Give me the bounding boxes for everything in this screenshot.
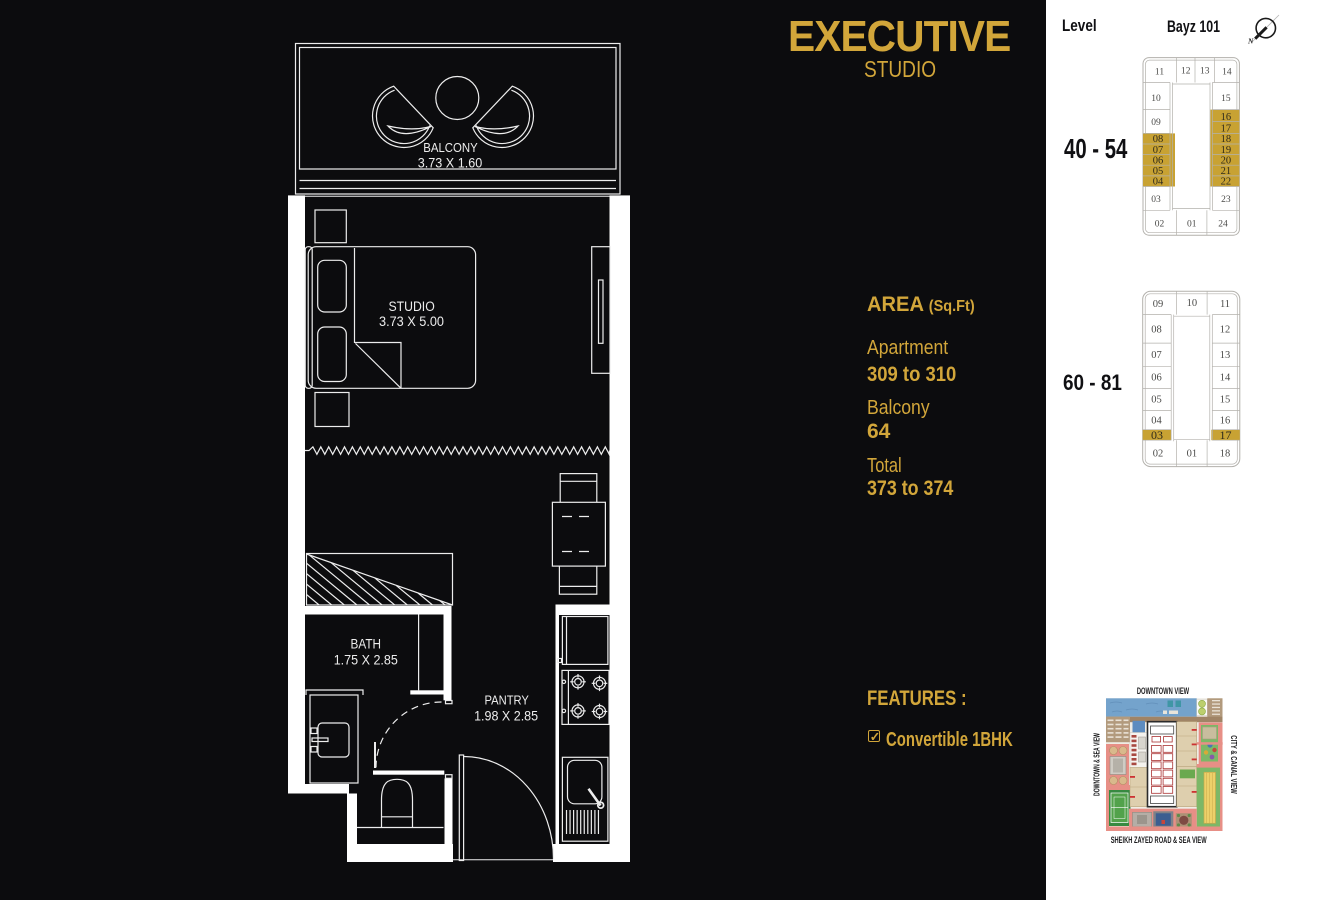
svg-text:18: 18 — [1221, 134, 1232, 145]
svg-text:05: 05 — [1151, 395, 1162, 406]
svg-text:DOWNTOWN VIEW: DOWNTOWN VIEW — [1137, 686, 1190, 696]
svg-text:15: 15 — [1221, 94, 1231, 104]
svg-text:14: 14 — [1222, 68, 1232, 78]
svg-text:06: 06 — [1153, 155, 1164, 166]
svg-text:04: 04 — [1151, 416, 1162, 427]
svg-text:1.98 X 2.85: 1.98 X 2.85 — [474, 708, 538, 724]
svg-text:BALCONY: BALCONY — [423, 140, 478, 155]
svg-text:02: 02 — [1155, 220, 1165, 230]
svg-text:05: 05 — [1153, 166, 1164, 177]
svg-text:16: 16 — [1221, 112, 1232, 123]
svg-text:14: 14 — [1220, 373, 1231, 384]
svg-text:11: 11 — [1220, 299, 1230, 310]
svg-text:06: 06 — [1151, 373, 1162, 384]
svg-text:22: 22 — [1221, 177, 1232, 188]
svg-text:07: 07 — [1153, 145, 1164, 156]
svg-text:17: 17 — [1221, 124, 1232, 135]
svg-text:02: 02 — [1153, 449, 1164, 460]
svg-text:03: 03 — [1151, 428, 1163, 442]
svg-text:SHEIKH ZAYED ROAD & SEA VIEW: SHEIKH ZAYED ROAD & SEA VIEW — [1111, 835, 1207, 845]
svg-text:DOWNTOWN & SEA VIEW: DOWNTOWN & SEA VIEW — [1093, 733, 1102, 796]
svg-text:10: 10 — [1187, 298, 1198, 309]
svg-text:09: 09 — [1151, 118, 1161, 128]
svg-text:07: 07 — [1151, 350, 1162, 361]
svg-text:09: 09 — [1153, 299, 1164, 310]
svg-text:PANTRY: PANTRY — [485, 693, 530, 708]
svg-text:03: 03 — [1151, 195, 1161, 205]
svg-text:STUDIO: STUDIO — [388, 299, 434, 314]
svg-text:01: 01 — [1187, 449, 1198, 460]
svg-text:04: 04 — [1153, 177, 1164, 188]
svg-text:20: 20 — [1221, 155, 1232, 166]
svg-text:CITY & CANAL VIEW: CITY & CANAL VIEW — [1229, 735, 1238, 794]
svg-text:3.73 X 5.00: 3.73 X 5.00 — [379, 313, 444, 329]
svg-text:1.75 X 2.85: 1.75 X 2.85 — [334, 652, 398, 668]
svg-text:08: 08 — [1153, 134, 1164, 145]
svg-text:BATH: BATH — [351, 636, 382, 652]
svg-text:3.73 X 1.60: 3.73 X 1.60 — [418, 155, 483, 171]
svg-text:N: N — [1247, 37, 1254, 46]
svg-text:12: 12 — [1220, 325, 1231, 336]
svg-text:18: 18 — [1220, 449, 1231, 460]
svg-text:24: 24 — [1218, 220, 1228, 230]
svg-text:21: 21 — [1221, 166, 1232, 177]
svg-text:17: 17 — [1220, 428, 1232, 442]
svg-text:19: 19 — [1221, 145, 1232, 156]
svg-text:11: 11 — [1155, 68, 1164, 78]
svg-text:13: 13 — [1220, 350, 1231, 361]
svg-text:08: 08 — [1151, 325, 1162, 336]
svg-text:10: 10 — [1151, 94, 1161, 104]
svg-text:15: 15 — [1220, 395, 1231, 406]
svg-text:16: 16 — [1220, 416, 1231, 427]
svg-text:23: 23 — [1221, 195, 1231, 205]
svg-text:13: 13 — [1200, 67, 1210, 77]
svg-text:12: 12 — [1181, 67, 1191, 77]
svg-text:01: 01 — [1187, 220, 1197, 230]
